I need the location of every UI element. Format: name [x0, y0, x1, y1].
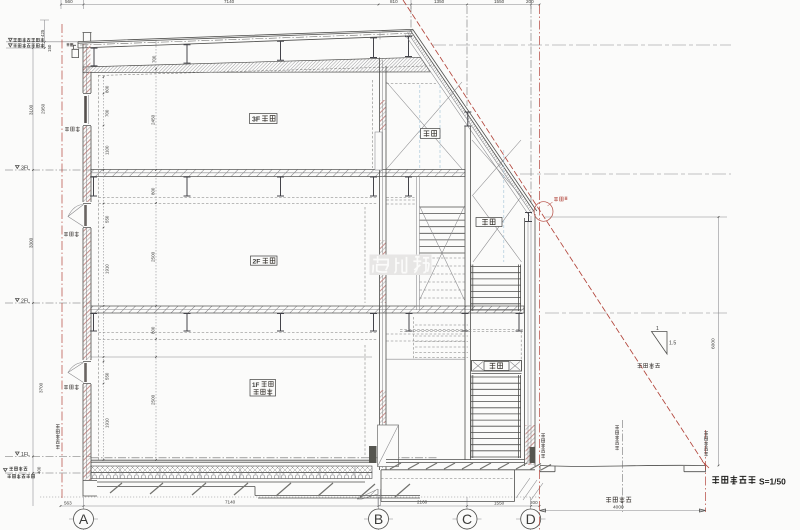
svg-text:1F: 1F [252, 382, 260, 389]
svg-text:150: 150 [47, 44, 52, 52]
svg-text:1350: 1350 [434, 0, 445, 4]
svg-text:200: 200 [530, 500, 538, 505]
svg-text:700: 700 [105, 109, 110, 117]
svg-text:800: 800 [151, 326, 156, 334]
svg-text:3700: 3700 [39, 382, 44, 393]
svg-text:810: 810 [390, 0, 398, 4]
svg-text:3F: 3F [252, 117, 261, 124]
svg-text:2950: 2950 [41, 103, 46, 114]
svg-text:1FL: 1FL [21, 452, 30, 458]
svg-text:1100: 1100 [105, 145, 110, 155]
svg-text:3FL: 3FL [21, 166, 30, 172]
svg-text:550: 550 [105, 372, 110, 380]
svg-text:200: 200 [526, 0, 534, 4]
svg-text:2F: 2F [253, 259, 261, 266]
svg-text:800: 800 [151, 187, 156, 195]
svg-text:C: C [462, 511, 472, 527]
svg-text:3100: 3100 [29, 104, 34, 115]
svg-text:1910: 1910 [105, 418, 110, 428]
svg-text:550: 550 [105, 215, 110, 223]
svg-text:425: 425 [40, 29, 45, 37]
svg-text:2500: 2500 [151, 394, 156, 405]
svg-text:560: 560 [65, 0, 73, 4]
svg-text:1: 1 [656, 326, 659, 332]
svg-text:1550: 1550 [494, 0, 505, 4]
svg-text:563: 563 [64, 500, 72, 505]
svg-text:D: D [526, 511, 536, 527]
svg-text:B: B [374, 511, 383, 527]
svg-text:2FL: 2FL [21, 299, 30, 305]
svg-text:S=1/50: S=1/50 [759, 477, 786, 487]
svg-text:2500: 2500 [151, 251, 156, 262]
svg-text:4000: 4000 [613, 505, 624, 511]
svg-text:7140: 7140 [224, 0, 235, 4]
svg-text:3300: 3300 [29, 237, 34, 248]
svg-text:A: A [79, 511, 89, 527]
svg-text:7140: 7140 [225, 499, 236, 504]
svg-text:1.5: 1.5 [669, 341, 676, 347]
svg-text:2450: 2450 [151, 114, 156, 125]
svg-text:6000: 6000 [711, 338, 717, 349]
svg-text:800: 800 [105, 85, 110, 93]
svg-text:1910: 1910 [105, 264, 110, 274]
